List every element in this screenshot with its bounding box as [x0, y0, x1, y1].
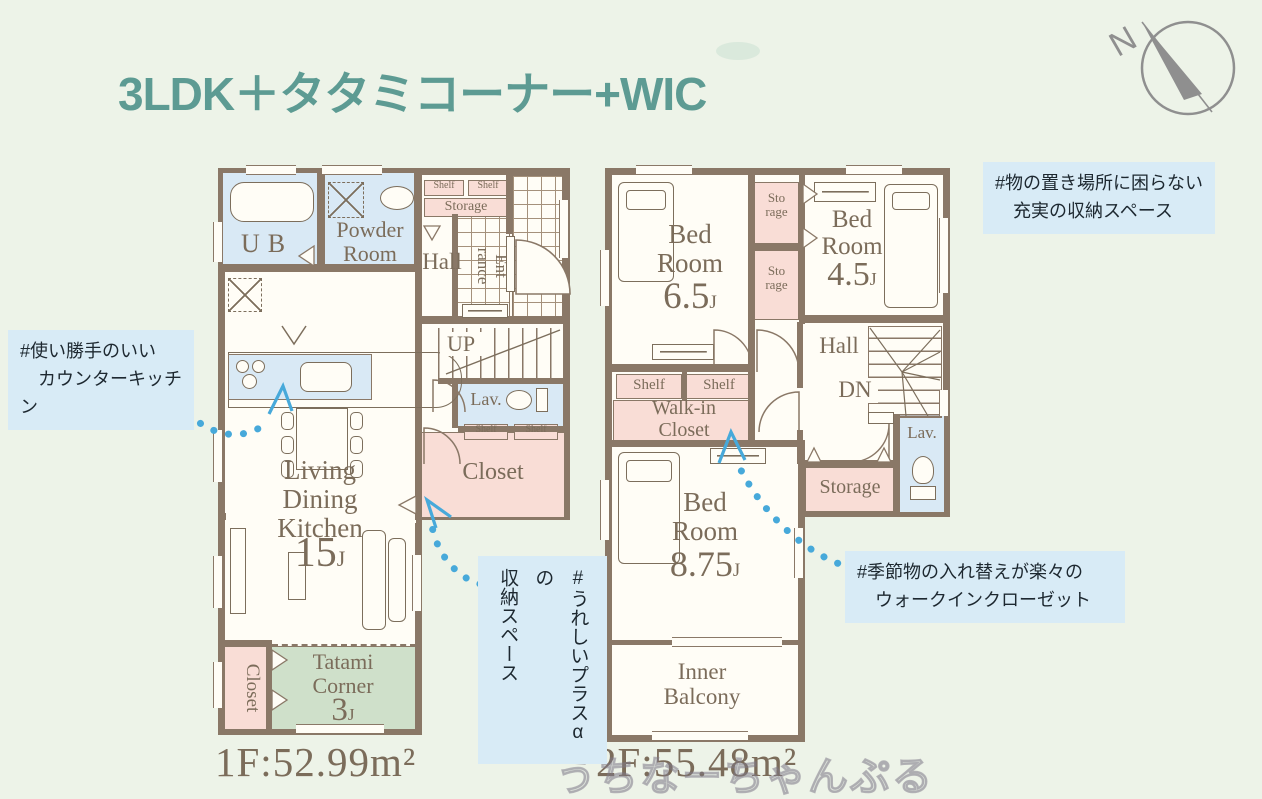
room-size-unit: J [733, 560, 740, 581]
shelf-label: Shelf [468, 181, 508, 192]
window-marker [322, 165, 382, 175]
window-marker [939, 390, 949, 416]
window-sill-counter [652, 344, 714, 360]
room-label-hall-2f: Hall [810, 334, 868, 359]
room-size-ldk: 15J [250, 532, 390, 574]
stove-burner-icon [236, 360, 249, 373]
compass: N [1096, 0, 1262, 138]
wall [266, 646, 272, 730]
room-label-closet-1f: Closet [447, 460, 539, 486]
stair-landing-step [868, 412, 894, 424]
bathtub-icon [230, 182, 314, 222]
window-marker [559, 200, 569, 258]
wall [605, 364, 750, 372]
window-marker [636, 165, 692, 175]
tatami-sliding-door [272, 644, 416, 646]
window-marker [600, 480, 610, 540]
desk-icon [814, 182, 876, 202]
note-counter-kitchen: #使い勝手のいい カウンターキッチン [8, 330, 194, 430]
note-storage-space: #物の置き場所に困らない 充実の収納スペース [983, 162, 1215, 234]
room-label-bedroom1: Bed Room [630, 220, 750, 278]
window-marker [600, 250, 610, 306]
refrigerator-icon [228, 278, 262, 312]
shelf-label: Shelf [616, 377, 682, 393]
entrance-porch-tiles [512, 175, 563, 318]
stairs-dn-label: DN [832, 378, 878, 403]
window-marker [246, 165, 296, 175]
washer-icon [328, 182, 364, 218]
pillow-icon [626, 190, 666, 210]
stove-burner-icon [252, 360, 265, 373]
wall [805, 460, 895, 467]
shelf-label: Shelf [464, 425, 508, 436]
wall [797, 430, 803, 464]
room-label-tatami: Tatami Corner [278, 650, 408, 698]
note-plus-alpha-storage: #うれしいプラスαの 収納スペース [478, 556, 607, 764]
window-marker [794, 528, 804, 578]
kitchen-sink-icon [300, 362, 352, 392]
toilet-icon [912, 456, 934, 484]
room-label-lav-2f: Lav. [899, 424, 945, 442]
tv-board-icon [230, 528, 246, 614]
window-marker [846, 165, 902, 175]
room-size-unit: J [337, 547, 346, 571]
toilet-tank-icon [536, 388, 548, 412]
room-size-value: 6.5 [663, 276, 709, 317]
chair-icon [281, 436, 294, 454]
window-marker [213, 222, 223, 262]
chair-icon [281, 412, 294, 430]
room-size-bedroom2: 4.5J [792, 258, 912, 292]
room-size-unit: J [870, 269, 877, 289]
sink-icon [380, 186, 414, 210]
room-label-bedroom2: Bed Room [792, 206, 912, 260]
note-walkin-closet: #季節物の入れ替えが楽々の ウォークインクローゼット [845, 551, 1125, 623]
room-label-closet-tatami: Closet [232, 647, 262, 729]
room-label-bedroom3: Bed Room [645, 488, 765, 546]
window-marker [213, 430, 223, 482]
pillow-icon [626, 460, 672, 482]
room-label-ub: UB [234, 230, 300, 258]
room-size-unit: J [709, 292, 717, 313]
wall [222, 640, 272, 646]
arrow-dots-closet [431, 516, 480, 584]
wall [797, 322, 803, 388]
compass-circle [1142, 22, 1234, 114]
stairs-up-label: UP [440, 332, 482, 356]
floor1-area-label: 1F:52.99m² [215, 740, 416, 784]
chair-icon [350, 412, 363, 430]
room-label-lav-1f: Lav. [462, 390, 510, 409]
window-marker [672, 637, 782, 647]
page-title: 3LDK＋タタミコーナー+WIC [118, 58, 706, 124]
compass-north-label: N [1103, 19, 1143, 64]
room-size-value: 3 [331, 692, 348, 728]
room-size-bedroom3: 8.75J [640, 546, 770, 582]
shelf-label: Shelf [514, 425, 558, 436]
shelf-label: Shelf [424, 181, 464, 192]
stairs-dn [868, 326, 942, 418]
wall [799, 315, 950, 323]
room-size-tatami: 3J [278, 694, 408, 727]
room-label-wic: Walk-in Closet [618, 398, 750, 441]
toilet-tank-icon [910, 486, 936, 500]
storage-label-2f: Storage [805, 477, 895, 499]
sofa-back-icon [388, 538, 406, 622]
shelf-label: Shelf [686, 377, 752, 393]
watermark-smudge [716, 42, 760, 60]
window-marker [213, 556, 223, 608]
stove-burner-icon [242, 374, 257, 389]
room-label-powder: Powder Room [320, 218, 420, 266]
room-size-unit: J [348, 705, 355, 724]
shelf-counter-icon [710, 448, 766, 464]
floor-plan-canvas: 3LDK＋タタミコーナー+WIC N [0, 0, 1262, 799]
room-size-value: 8.75 [670, 544, 733, 584]
storage-label: Storage [424, 199, 508, 214]
room-size-bedroom1: 6.5J [630, 278, 750, 315]
chair-icon [350, 436, 363, 454]
window-marker [213, 662, 223, 708]
room-size-value: 4.5 [827, 256, 870, 293]
room-label-inner-balcony: Inner Balcony [632, 660, 772, 710]
window-marker [939, 218, 949, 293]
window-marker [412, 555, 422, 611]
room-size-value: 15 [295, 530, 337, 576]
room-label-entrance: Ent rance [458, 214, 510, 318]
watermark-text: うちなーちゃんぷる [556, 744, 934, 799]
